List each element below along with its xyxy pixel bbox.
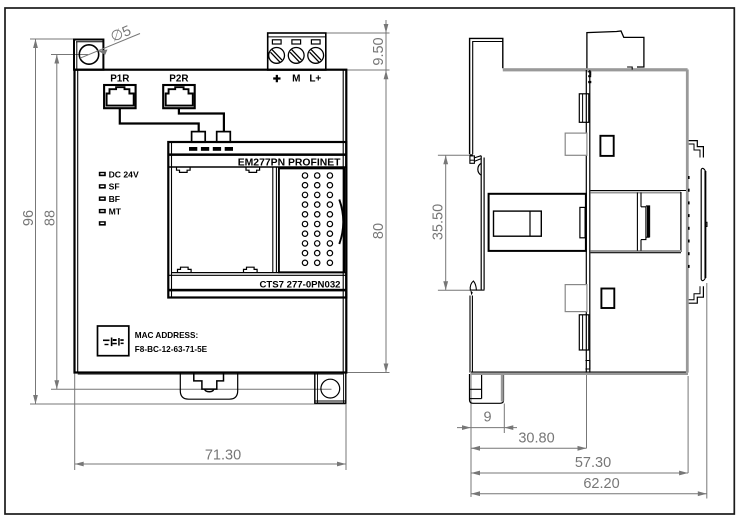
svg-text:P1R: P1R (110, 74, 129, 85)
svg-text:BF: BF (109, 194, 120, 204)
svg-text:L+: L+ (309, 74, 321, 85)
svg-text:62.20: 62.20 (583, 476, 619, 492)
svg-text:9: 9 (483, 410, 491, 426)
svg-text:CTS7 277-0PN032: CTS7 277-0PN032 (259, 279, 340, 290)
svg-text:F8-BC-12-63-71-5E: F8-BC-12-63-71-5E (135, 345, 208, 354)
svg-text:M: M (292, 74, 300, 85)
svg-text:30.80: 30.80 (518, 431, 554, 447)
svg-text:96: 96 (21, 210, 37, 226)
svg-text:80: 80 (371, 223, 387, 239)
svg-text:71.30: 71.30 (205, 448, 241, 464)
svg-text:9.50: 9.50 (371, 37, 387, 65)
svg-text:57.30: 57.30 (575, 455, 611, 471)
svg-text:SF: SF (109, 182, 120, 192)
svg-text:P2R: P2R (169, 74, 188, 85)
svg-text:35.50: 35.50 (431, 204, 447, 240)
svg-text:MAC ADDRESS:: MAC ADDRESS: (135, 331, 198, 340)
svg-text:88: 88 (43, 210, 59, 226)
svg-text:DC 24V: DC 24V (109, 169, 139, 179)
svg-text:MT: MT (109, 206, 122, 216)
svg-text:✚: ✚ (273, 74, 282, 85)
